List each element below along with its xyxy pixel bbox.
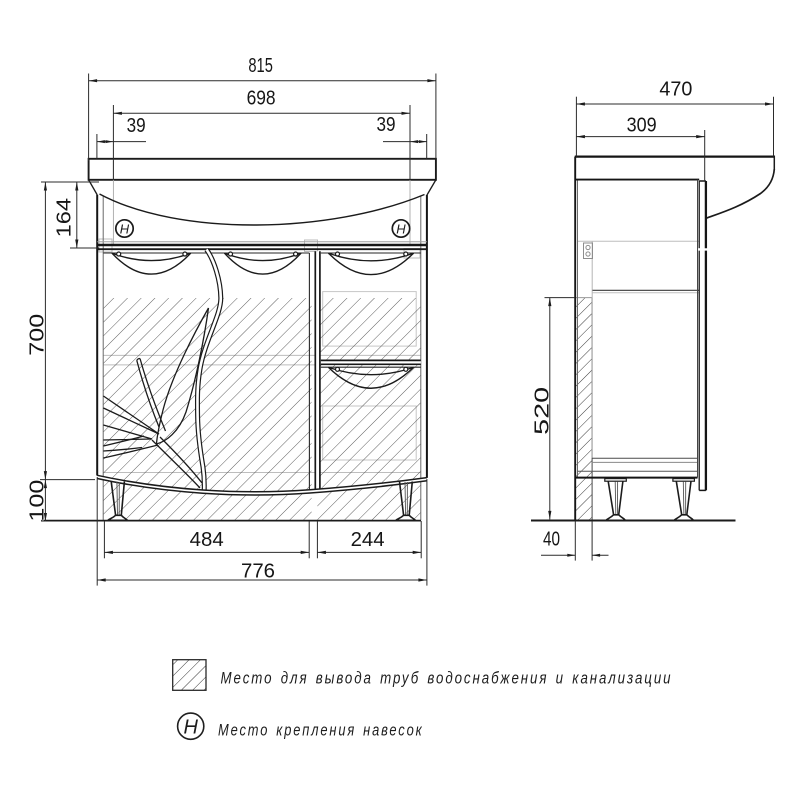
svg-text:40: 40 <box>543 529 560 551</box>
svg-text:164: 164 <box>54 198 76 238</box>
svg-text:Место крепления навесок: Место крепления навесок <box>218 722 424 740</box>
svg-text:520: 520 <box>531 387 553 435</box>
svg-text:484: 484 <box>190 529 224 551</box>
svg-text:H: H <box>396 221 406 236</box>
svg-text:100: 100 <box>27 480 49 522</box>
svg-text:700: 700 <box>27 314 49 356</box>
svg-text:39: 39 <box>127 115 146 137</box>
svg-text:244: 244 <box>351 529 385 551</box>
svg-text:309: 309 <box>627 114 657 136</box>
svg-text:39: 39 <box>377 114 396 136</box>
svg-text:H: H <box>183 717 198 739</box>
svg-text:470: 470 <box>659 78 692 100</box>
svg-text:815: 815 <box>248 55 273 77</box>
svg-text:776: 776 <box>241 560 275 582</box>
svg-text:Место для вывода труб водоснаб: Место для вывода труб водоснабжения и ка… <box>221 670 673 688</box>
svg-text:698: 698 <box>247 87 276 109</box>
svg-text:H: H <box>120 221 130 236</box>
